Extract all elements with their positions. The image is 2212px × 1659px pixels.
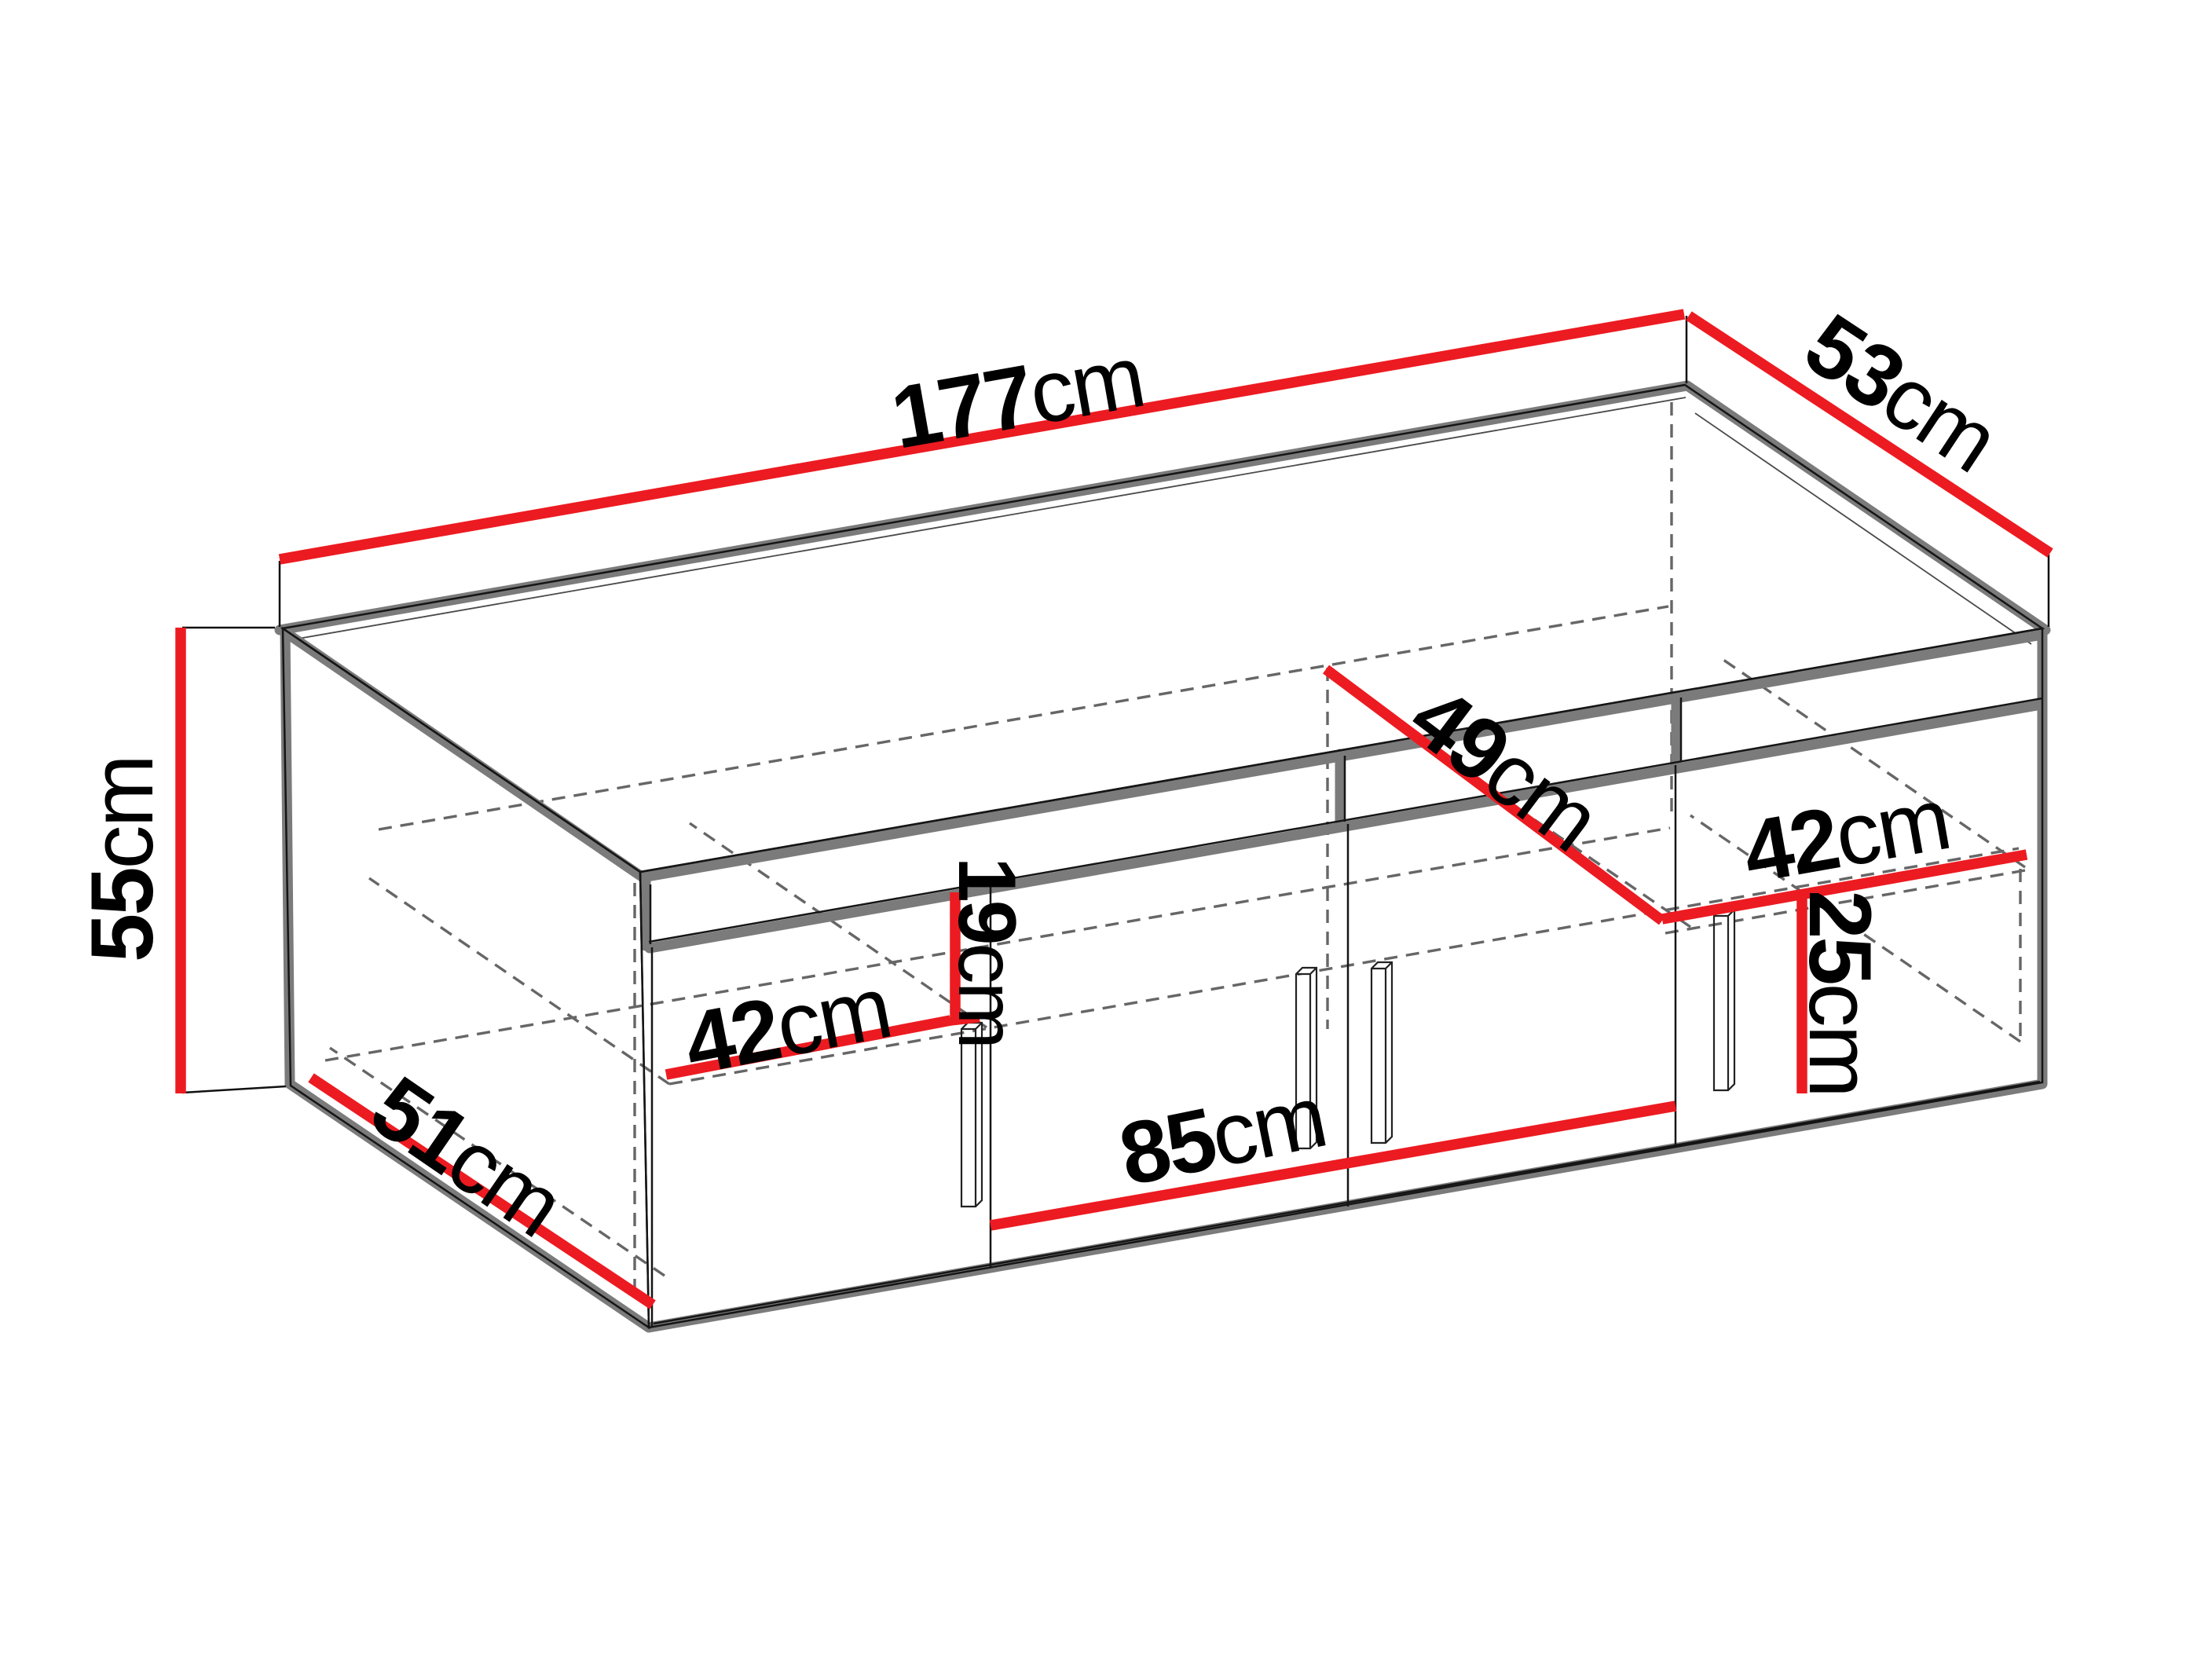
ext-height-bottom <box>182 1086 286 1093</box>
dim-left-inner-width-value: 42 <box>676 980 786 1093</box>
dim-right-shelf-height-label: 25cm <box>1796 890 1884 1096</box>
dim-height-value: 55 <box>73 869 171 962</box>
dim-right-shelf-height-value: 25 <box>1791 890 1889 983</box>
dim-height-unit: cm <box>73 756 171 869</box>
dim-right-inner-width-unit: cm <box>1828 769 1956 885</box>
dim-niche-height-value: 19 <box>941 857 1032 943</box>
dim-width-unit: cm <box>1022 327 1150 443</box>
dim-height-label: 55cm <box>79 756 167 962</box>
dim-niche-height-label: 19cm <box>946 857 1027 1047</box>
dim-right-inner-width-value: 42 <box>1736 789 1844 902</box>
dimension-diagram: 177cm 53cm 55cm 49cm 42cm 19cm 42cm 25cm… <box>0 0 2212 1659</box>
dim-niche-height-unit: cm <box>941 943 1032 1048</box>
dim-right-shelf-height-unit: cm <box>1791 983 1889 1096</box>
